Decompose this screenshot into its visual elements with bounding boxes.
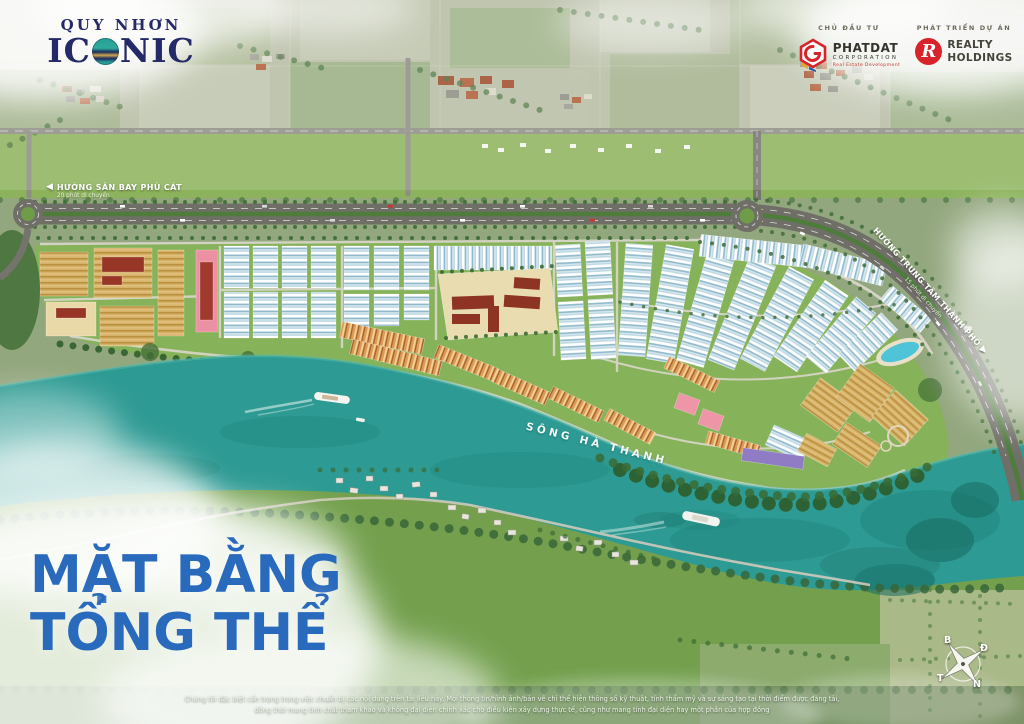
- compass-north: B: [944, 635, 951, 646]
- title-line-1: MẶT BẰNG: [30, 546, 342, 604]
- compass-star-icon: [927, 628, 999, 700]
- phatdat-logo-icon: [798, 38, 828, 72]
- disclaimer-line-1: Chúng tôi đặc biệt cẩn trọng trong việc …: [0, 694, 1024, 705]
- arrow-left-icon: ◀: [46, 183, 53, 193]
- disclaimer: Chúng tôi đặc biệt cẩn trọng trong việc …: [0, 694, 1024, 716]
- compass-west: T: [937, 673, 943, 684]
- brand-name-post: NIC: [120, 34, 195, 69]
- disclaimer-line-2: đồng thời mang tính chất tham khảo và kh…: [0, 705, 1024, 716]
- master-plan-poster: QUY NHƠN IC NIC CHỦ ĐẦU TƯ PHATDAT CORPO…: [0, 0, 1024, 724]
- realty-holdings-logo-icon: R: [915, 38, 942, 65]
- airport-road-sub: 20 phút di chuyển: [57, 193, 182, 199]
- developer-label: PHÁT TRIỂN DỰ ÁN: [912, 24, 1016, 32]
- investor-label: CHỦ ĐẦU TƯ: [790, 24, 908, 32]
- airport-direction-label: ◀ HƯỚNG SÂN BAY PHÙ CÁT 20 phút di chuyể…: [46, 183, 182, 199]
- title-line-2: TỔNG THỂ: [30, 604, 342, 662]
- compass-east: Đ: [980, 643, 988, 654]
- investor-block: CHỦ ĐẦU TƯ PHATDAT CORPORATION Real Esta…: [790, 24, 908, 72]
- brand-name: IC NIC: [36, 34, 206, 69]
- brand-logo: QUY NHƠN IC NIC: [36, 16, 206, 69]
- airport-road-name: HƯỚNG SÂN BAY PHÙ CÁT: [57, 183, 182, 192]
- brand-name-pre: IC: [47, 34, 91, 69]
- investor-sub: CORPORATION: [833, 54, 901, 62]
- investor-name: PHATDAT: [833, 42, 901, 54]
- realty-monogram: R: [921, 43, 936, 61]
- compass-rose: B Đ N T: [927, 628, 999, 700]
- developer-name-line1: REALTY: [947, 39, 1012, 51]
- developer-name-line2: HOLDINGS: [947, 52, 1012, 64]
- compass-south: N: [973, 679, 981, 690]
- logo-wave-icon: [92, 38, 119, 65]
- investor-tagline: Real Estate Development: [833, 63, 901, 68]
- roundabout-east: [731, 200, 763, 232]
- page-title: MẶT BẰNG TỔNG THỂ: [30, 546, 342, 662]
- developer-block: PHÁT TRIỂN DỰ ÁN R REALTY HOLDINGS: [912, 24, 1016, 65]
